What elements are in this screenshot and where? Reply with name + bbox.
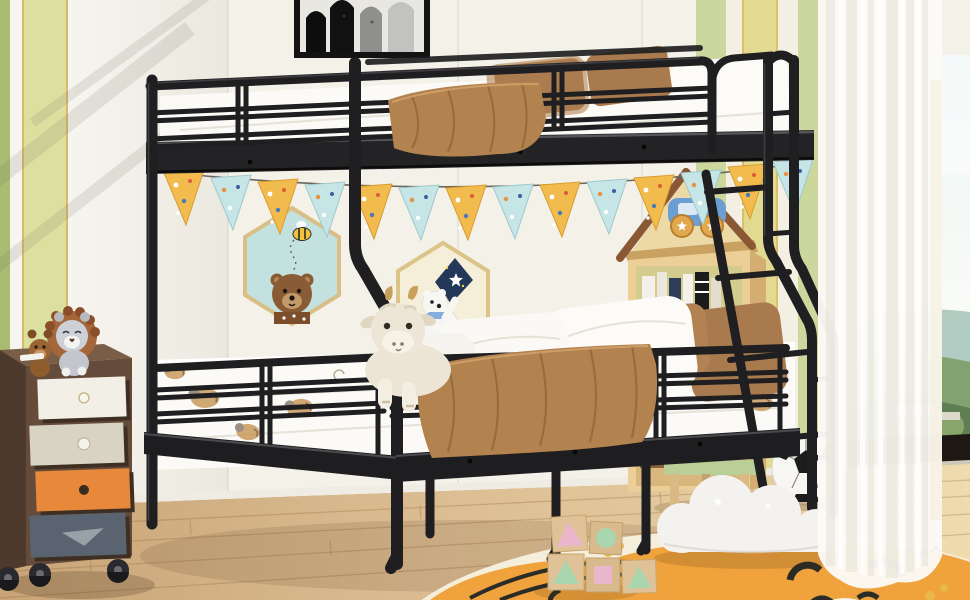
stool-leg	[670, 474, 679, 506]
caster-wheel	[29, 563, 51, 587]
upper-blanket	[388, 82, 546, 156]
black-cat-shape	[306, 11, 326, 52]
nightstand-side	[0, 350, 26, 572]
cat-wall-art	[294, 0, 430, 58]
goat-leg	[378, 378, 392, 408]
scene-canvas	[0, 0, 970, 600]
drawer-gray	[29, 422, 128, 469]
block	[622, 559, 657, 593]
block	[589, 521, 623, 555]
bear-face	[271, 274, 314, 325]
caster-wheel	[107, 559, 129, 583]
drawer-orange	[35, 468, 134, 515]
goat-leg	[402, 382, 416, 412]
gray-cat-shape	[360, 7, 382, 53]
kids-bedroom-photo	[0, 0, 970, 600]
block	[551, 515, 588, 552]
block	[548, 554, 584, 590]
block	[586, 558, 620, 592]
lower-blanket	[418, 344, 657, 458]
drawer-slate	[29, 512, 131, 561]
sheer-curtain	[818, 0, 942, 589]
drawer-white	[37, 376, 130, 423]
